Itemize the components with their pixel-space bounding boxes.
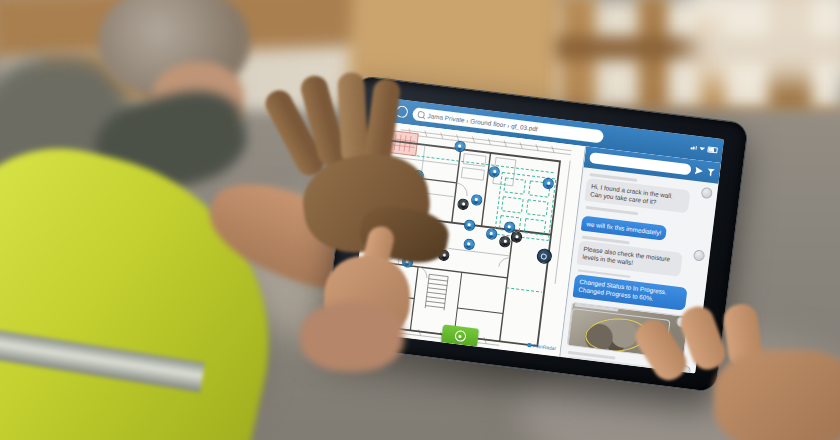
watermark-logo-icon — [527, 343, 531, 347]
signal-icon — [691, 145, 697, 150]
bright-sky-patch — [690, 0, 840, 80]
status-icons — [691, 144, 718, 153]
left-hand — [318, 226, 438, 356]
right-hand — [628, 306, 840, 440]
filter-icon[interactable] — [706, 168, 715, 177]
avatar — [701, 187, 713, 199]
target-icon — [454, 330, 466, 342]
battery-icon — [707, 146, 718, 153]
add-pin-button[interactable] — [441, 324, 479, 347]
left-wrist — [300, 302, 404, 372]
message-meta — [585, 206, 638, 215]
wifi-icon — [699, 146, 705, 151]
right-palm — [714, 350, 840, 440]
construction-site-photo: Jama Private › Ground floor › gf_03.pdf — [0, 0, 840, 440]
avatar — [693, 250, 705, 262]
send-icon[interactable] — [694, 166, 703, 175]
